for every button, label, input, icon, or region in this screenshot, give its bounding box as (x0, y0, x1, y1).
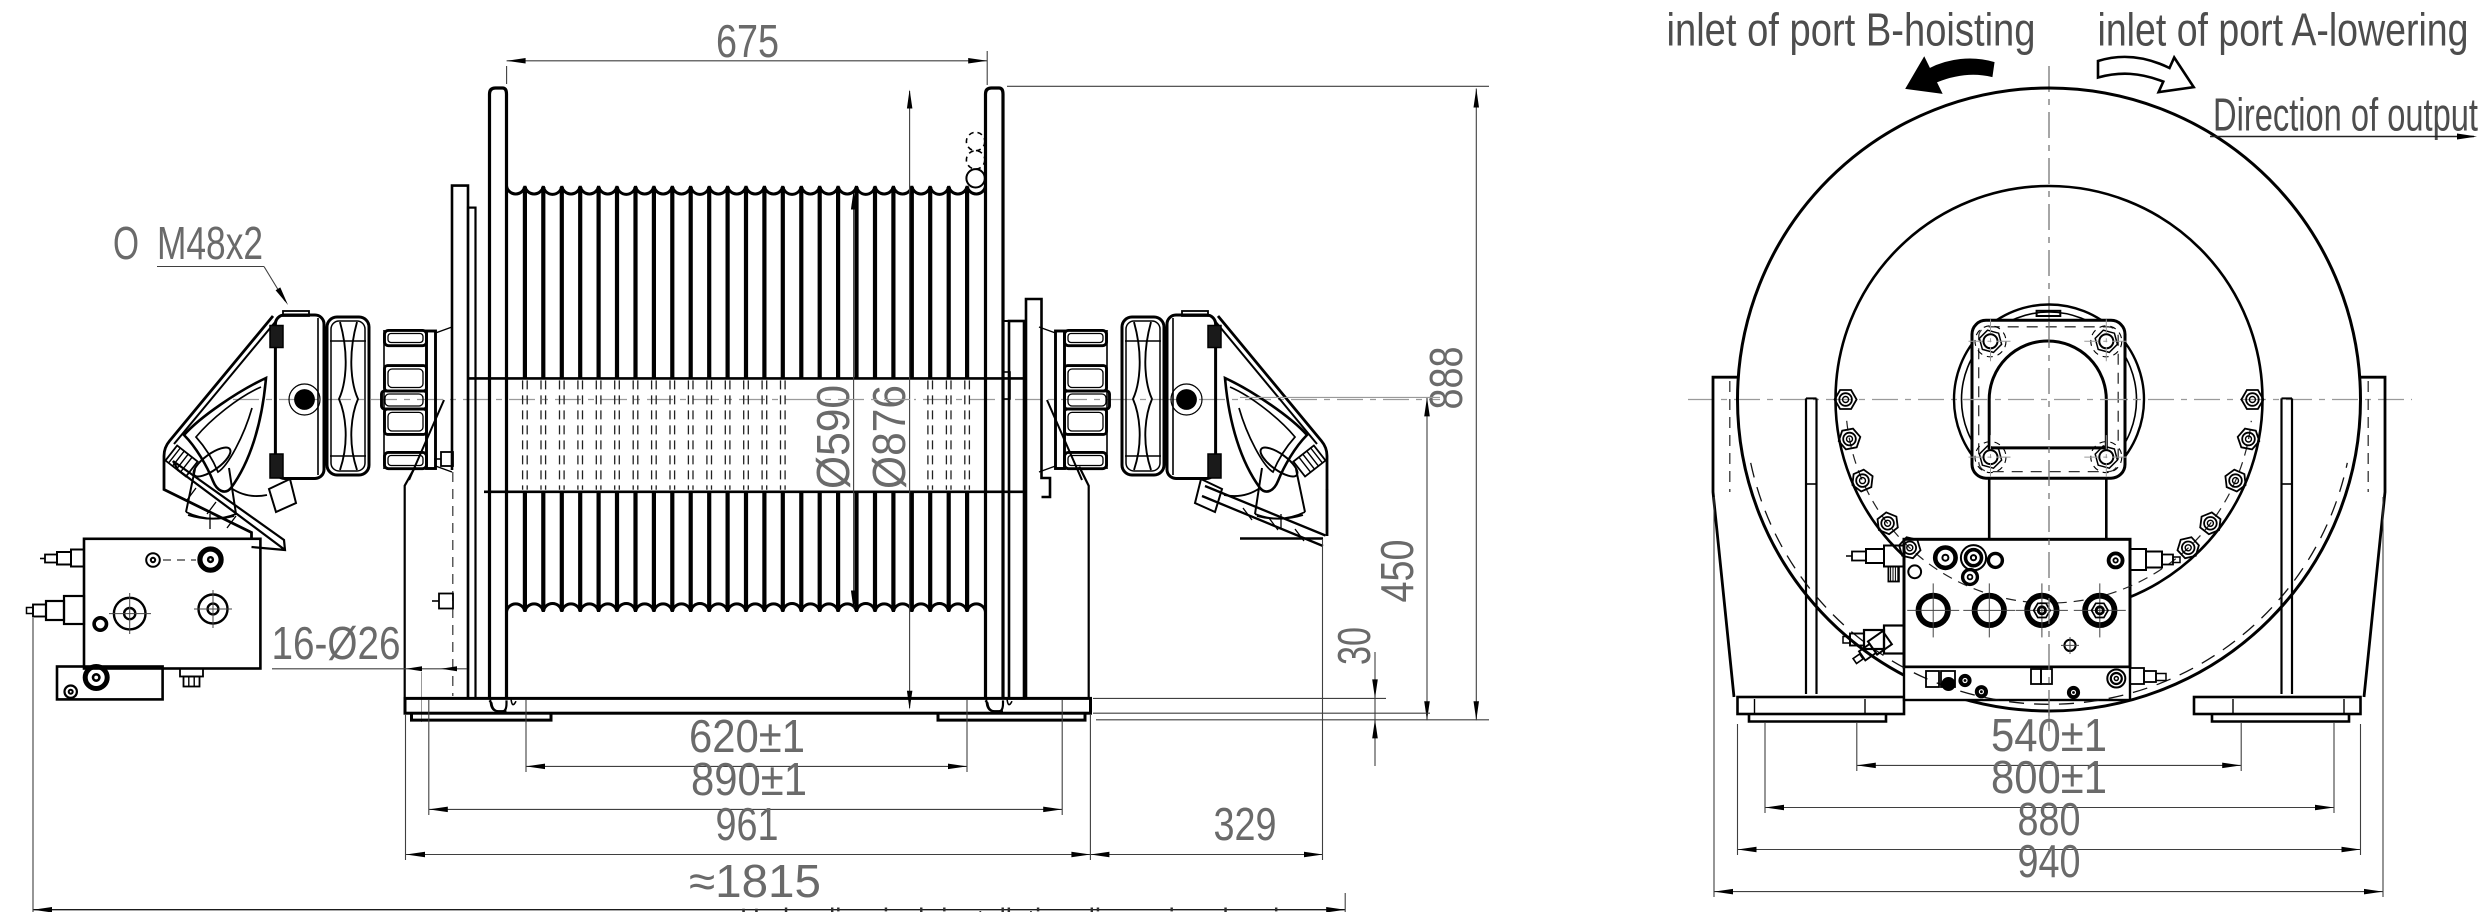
svg-text:30: 30 (1328, 627, 1380, 665)
svg-text:450: 450 (1371, 540, 1423, 603)
svg-text:961: 961 (716, 798, 779, 850)
svg-text:inlet of port B-hoisting: inlet of port B-hoisting (1667, 3, 2036, 55)
svg-text:329: 329 (1214, 798, 1277, 850)
svg-text:940: 940 (2018, 835, 2081, 887)
svg-text:675: 675 (716, 15, 779, 67)
svg-text:Ø590: Ø590 (807, 385, 859, 489)
svg-text:inlet of port A-lowering: inlet of port A-lowering (2098, 3, 2469, 55)
svg-text:888: 888 (1420, 347, 1472, 410)
svg-text:Ø876: Ø876 (863, 385, 915, 489)
svg-text:Direction of output: Direction of output (2213, 89, 2478, 141)
svg-text:O: O (113, 217, 139, 269)
svg-text:16-Ø26: 16-Ø26 (272, 617, 401, 669)
svg-text:Hydraulic winch installation d: Hydraulic winch installation dimension d… (740, 899, 1310, 912)
svg-text:M48x2: M48x2 (157, 217, 263, 269)
